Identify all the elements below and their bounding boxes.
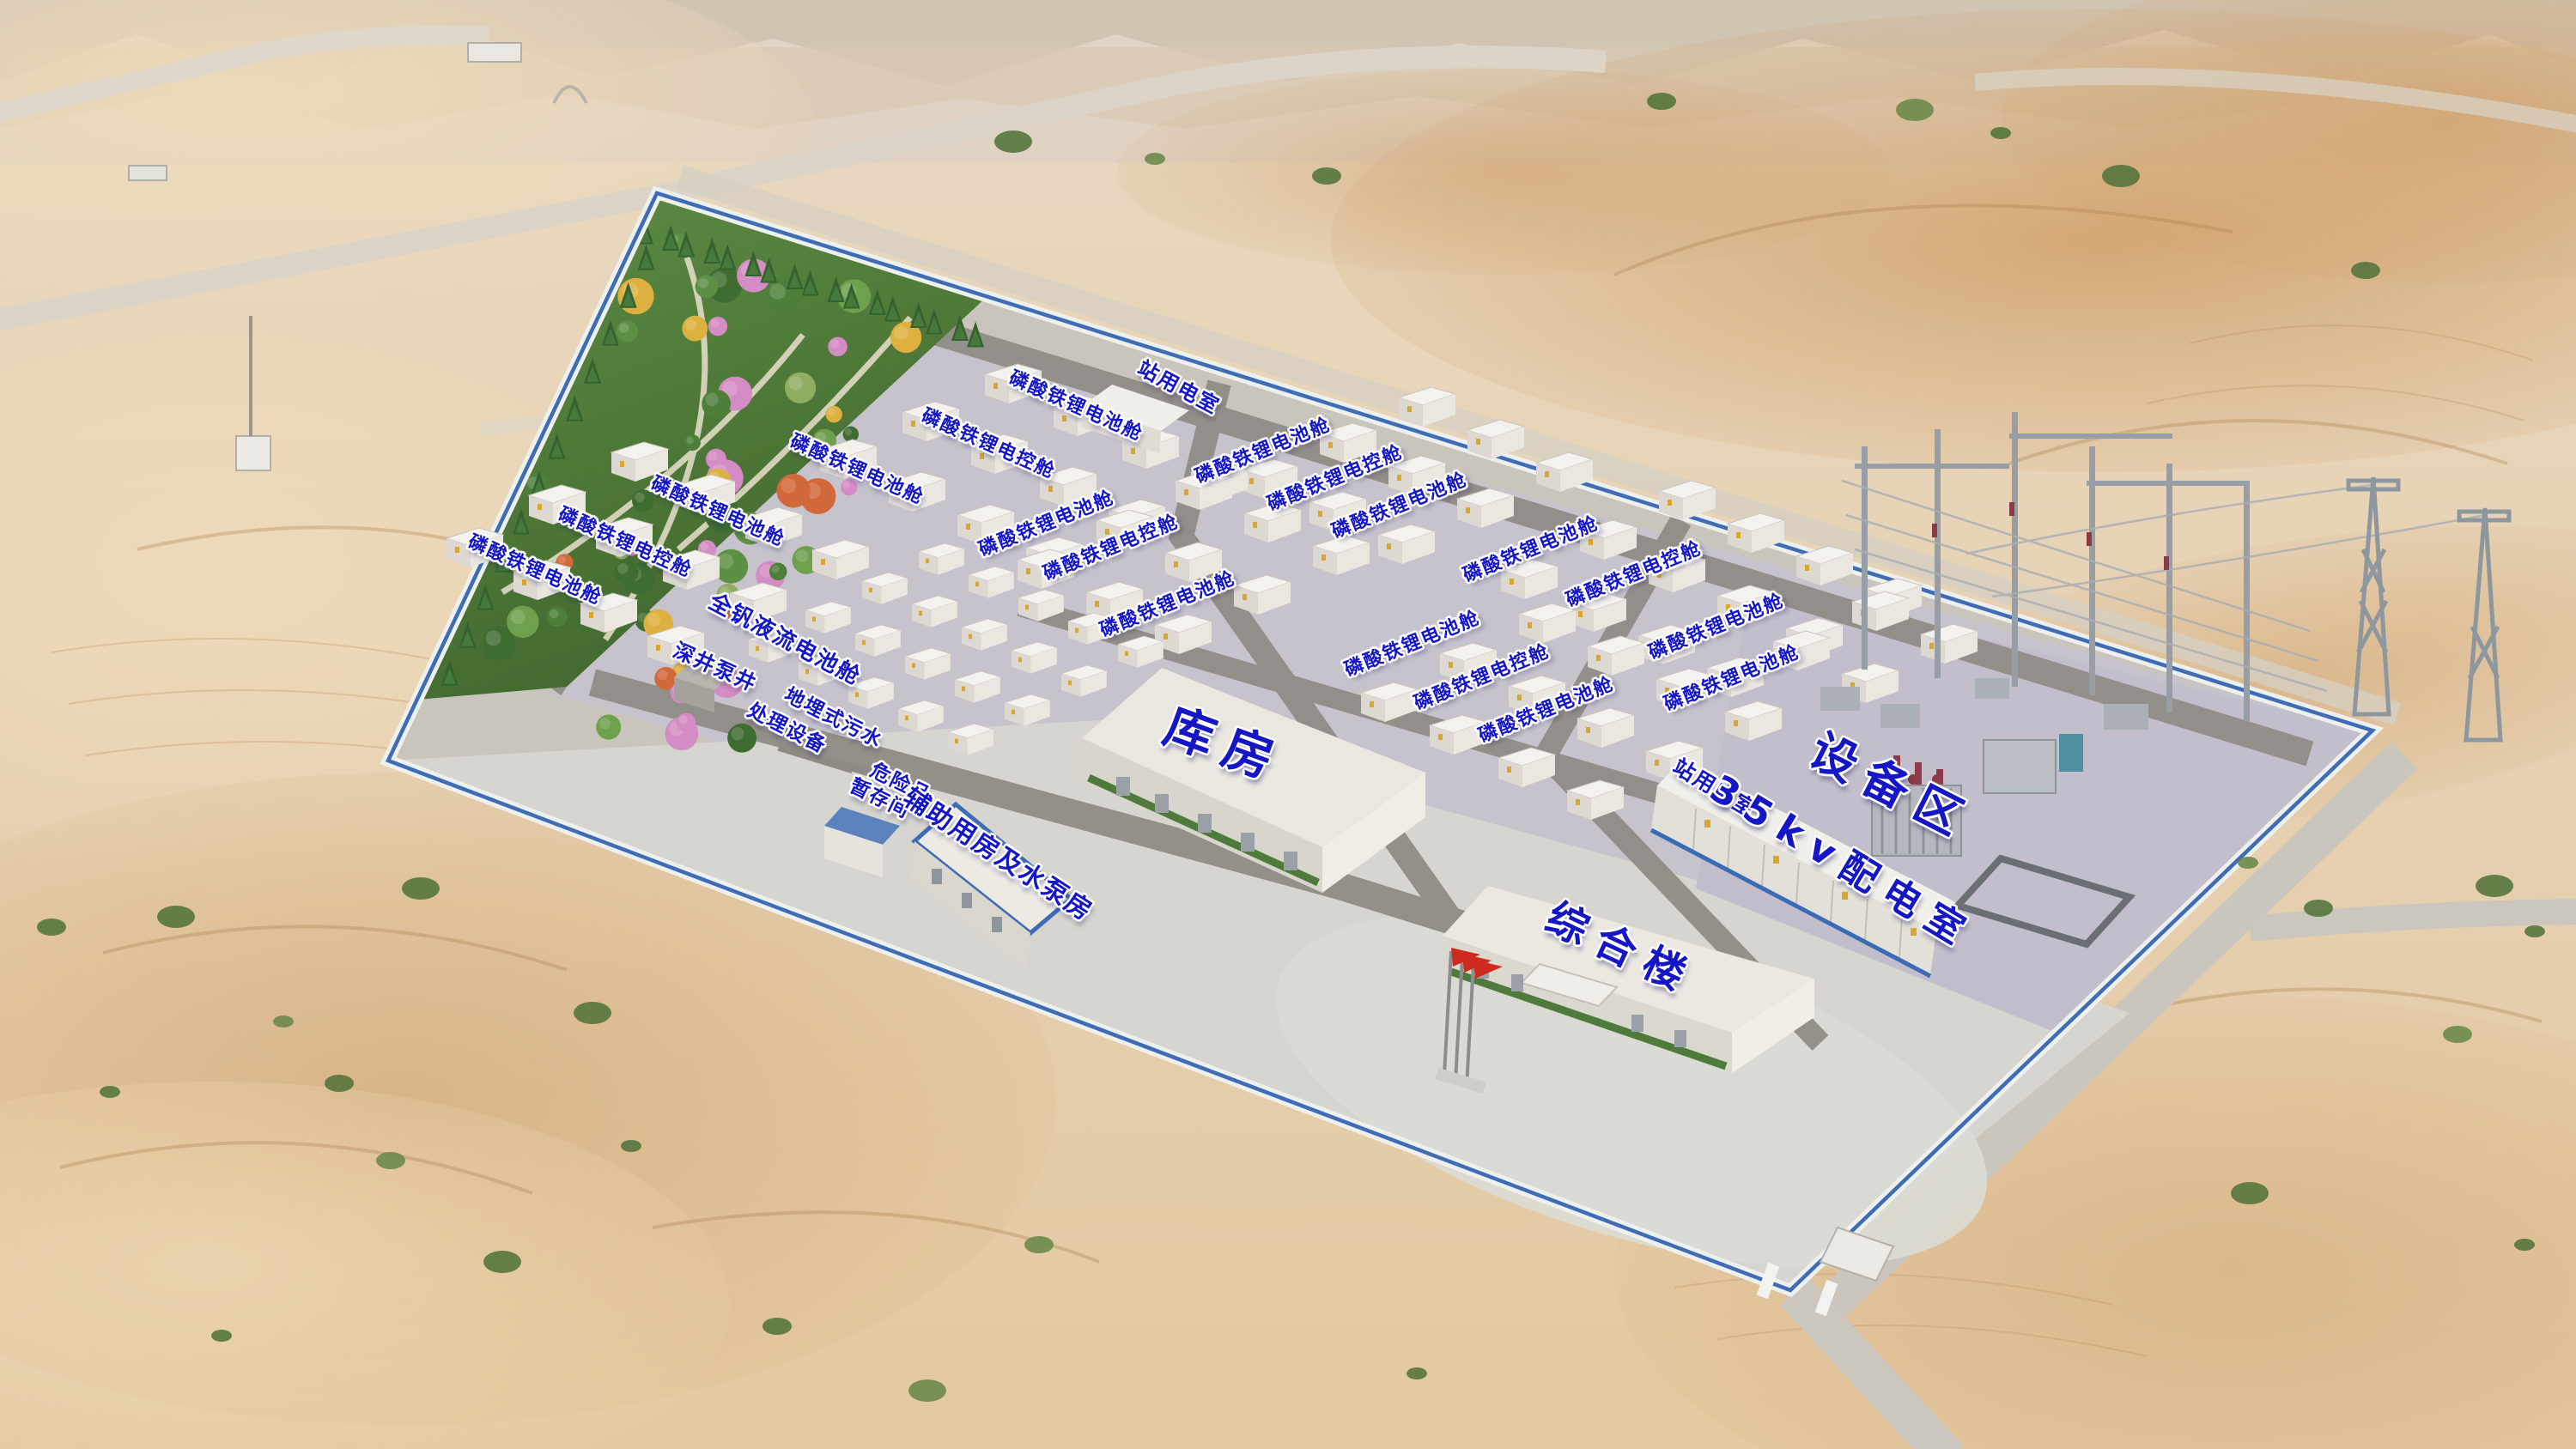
desert-shrub [1145,153,1165,165]
desert-shrub [574,1002,611,1024]
desert-shrub [2524,925,2545,937]
desert-shrub [211,1330,232,1342]
desert-shrub [1406,1367,1427,1379]
desert-shrub [2514,1239,2535,1251]
desert-shrub [157,906,195,928]
desert-shrub [2238,857,2258,869]
desert-shrub [1312,167,1341,185]
desert-shrub [1896,99,1934,121]
desert-shrub [1990,127,2011,139]
desert-shrub [2102,165,2140,187]
desert-shrub [762,1318,792,1335]
desert-shrub [325,1075,354,1092]
desert-shrub [37,919,66,936]
desert-shrub [1647,93,1676,110]
desert-shrub [273,1016,294,1028]
desert-shrub [483,1251,521,1273]
desert-shrub [402,877,440,900]
desert-shrub [994,130,1032,153]
desert-shrub [376,1152,405,1169]
desert-shrub [2231,1182,2269,1204]
desert-shrub [2476,875,2513,897]
desert-shrub [908,1379,946,1402]
desert-shrub [100,1086,120,1098]
desert-shrub [2443,1026,2472,1043]
aerial-site-rendering: 磷酸铁锂电池舱磷酸铁锂电控舱磷酸铁锂电池舱磷酸铁锂电池舱磷酸铁锂电控舱磷酸铁锂电… [0,0,2576,1449]
desert-shrub [1024,1236,1054,1253]
desert-shrub [2351,262,2380,279]
desert-shrub [621,1140,641,1152]
desert-shrub [2304,900,2333,917]
terrain-and-site-graphics [0,0,2576,1449]
